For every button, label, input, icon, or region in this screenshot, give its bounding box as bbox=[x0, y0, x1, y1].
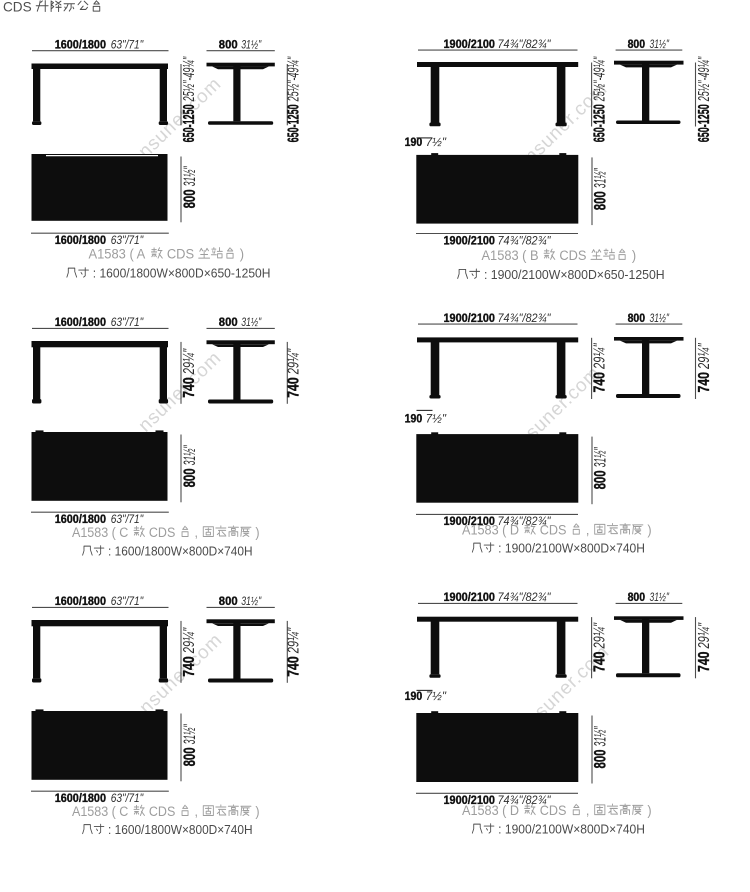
svg-text:1600/1800: 1600/1800 bbox=[55, 317, 106, 329]
svg-text:31½": 31½" bbox=[181, 445, 199, 466]
svg-text:800: 800 bbox=[219, 39, 238, 51]
svg-text:1600/1800: 1600/1800 bbox=[55, 596, 106, 608]
svg-text:740: 740 bbox=[181, 656, 198, 677]
svg-text:31½": 31½" bbox=[592, 726, 610, 747]
svg-text:74¾"/82¾": 74¾"/82¾" bbox=[498, 235, 552, 247]
svg-text:): ) bbox=[236, 246, 244, 262]
svg-text:740: 740 bbox=[696, 372, 713, 393]
svg-text:,: , bbox=[191, 803, 201, 819]
svg-text:740: 740 bbox=[286, 377, 303, 398]
svg-text:800: 800 bbox=[592, 750, 610, 769]
svg-text:1900/2100: 1900/2100 bbox=[444, 235, 496, 247]
svg-text:29¼": 29¼" bbox=[286, 627, 303, 654]
svg-text:25½"-49¼": 25½"-49¼" bbox=[286, 56, 303, 102]
svg-text:74¾"/82¾": 74¾"/82¾" bbox=[498, 39, 552, 51]
svg-text:1900/2100: 1900/2100 bbox=[444, 39, 496, 51]
svg-text:A1583 ( A: A1583 ( A bbox=[89, 246, 149, 262]
svg-text:800: 800 bbox=[181, 468, 199, 487]
svg-text:650-1250: 650-1250 bbox=[181, 104, 198, 142]
svg-text:29¼": 29¼" bbox=[286, 348, 303, 375]
svg-text:A1583 ( C: A1583 ( C bbox=[72, 803, 132, 819]
svg-text:CDS: CDS bbox=[3, 0, 35, 15]
svg-text:650-1250: 650-1250 bbox=[591, 104, 608, 142]
svg-text:29¼": 29¼" bbox=[591, 342, 608, 369]
svg-text:CDS: CDS bbox=[536, 802, 570, 818]
svg-text:,: , bbox=[582, 522, 593, 538]
svg-text:650-1250: 650-1250 bbox=[696, 104, 713, 142]
svg-text:CDS: CDS bbox=[556, 247, 590, 263]
svg-text:29¼": 29¼" bbox=[696, 342, 713, 369]
svg-text:29¼": 29¼" bbox=[181, 627, 198, 654]
svg-text:31½": 31½" bbox=[241, 39, 262, 51]
svg-text:: 1900/2100W×800D×740H: : 1900/2100W×800D×740H bbox=[495, 541, 645, 556]
svg-text:800: 800 bbox=[219, 317, 238, 329]
svg-text:740: 740 bbox=[591, 372, 608, 393]
svg-text:1900/2100: 1900/2100 bbox=[444, 313, 496, 325]
svg-text:31½": 31½" bbox=[592, 447, 610, 468]
svg-text:31½": 31½" bbox=[241, 317, 262, 329]
svg-text:CDS: CDS bbox=[145, 803, 178, 819]
svg-text:190: 190 bbox=[405, 691, 423, 703]
svg-text:74¾"/82¾": 74¾"/82¾" bbox=[498, 313, 552, 325]
svg-text:7½": 7½" bbox=[426, 414, 447, 426]
svg-text:): ) bbox=[252, 803, 260, 819]
svg-text:CDS: CDS bbox=[163, 246, 197, 262]
svg-text:800: 800 bbox=[628, 313, 646, 325]
svg-text:63"/71": 63"/71" bbox=[111, 317, 144, 329]
svg-text:800: 800 bbox=[592, 191, 610, 210]
svg-text:29¼": 29¼" bbox=[696, 622, 713, 649]
svg-text:): ) bbox=[644, 522, 652, 538]
svg-text:190: 190 bbox=[405, 414, 423, 426]
svg-text:650-1250: 650-1250 bbox=[286, 104, 303, 142]
svg-text:A1583 ( D: A1583 ( D bbox=[462, 522, 523, 538]
svg-text:740: 740 bbox=[286, 656, 303, 677]
svg-text:31½": 31½" bbox=[650, 313, 670, 325]
svg-text:: 1600/1800W×800D×740H: : 1600/1800W×800D×740H bbox=[105, 823, 253, 838]
svg-text:: 1900/2100W×800D×650-1250H: : 1900/2100W×800D×650-1250H bbox=[481, 267, 665, 281]
svg-text:63"/71": 63"/71" bbox=[111, 39, 144, 51]
svg-text:25½"-49¼": 25½"-49¼" bbox=[181, 56, 198, 102]
svg-text:31½": 31½" bbox=[181, 166, 199, 187]
svg-text:A1583 ( C: A1583 ( C bbox=[72, 524, 132, 540]
svg-text:7½": 7½" bbox=[426, 137, 447, 149]
svg-text:29¼": 29¼" bbox=[591, 622, 608, 649]
svg-text:740: 740 bbox=[181, 377, 198, 398]
svg-text:800: 800 bbox=[592, 470, 610, 489]
svg-text:190: 190 bbox=[405, 137, 423, 149]
svg-text:800: 800 bbox=[181, 189, 199, 208]
svg-text:CDS: CDS bbox=[536, 522, 570, 538]
svg-text:31½": 31½" bbox=[241, 596, 262, 608]
svg-text:1600/1800: 1600/1800 bbox=[55, 39, 106, 51]
svg-text:740: 740 bbox=[591, 652, 608, 673]
svg-text:): ) bbox=[252, 524, 260, 540]
svg-text:800: 800 bbox=[628, 39, 646, 51]
svg-text:29¼": 29¼" bbox=[181, 348, 198, 375]
svg-text:800: 800 bbox=[219, 596, 238, 608]
svg-text:,: , bbox=[191, 524, 201, 540]
svg-text:): ) bbox=[628, 247, 636, 263]
svg-text:740: 740 bbox=[696, 652, 713, 673]
svg-text:1900/2100: 1900/2100 bbox=[444, 592, 496, 604]
svg-text:: 1900/2100W×800D×740H: : 1900/2100W×800D×740H bbox=[495, 822, 645, 837]
svg-text:7½": 7½" bbox=[426, 691, 447, 703]
svg-text:): ) bbox=[644, 802, 652, 818]
svg-text:74¾"/82¾": 74¾"/82¾" bbox=[498, 592, 552, 604]
svg-text:,: , bbox=[582, 802, 593, 818]
svg-text:31½": 31½" bbox=[650, 592, 670, 604]
svg-text:25½"-49¼": 25½"-49¼" bbox=[696, 56, 713, 102]
svg-text:A1583 ( B: A1583 ( B bbox=[482, 247, 543, 263]
svg-text:31½": 31½" bbox=[592, 168, 610, 189]
svg-text:800: 800 bbox=[181, 747, 199, 766]
svg-text:25½"-49¼": 25½"-49¼" bbox=[591, 56, 608, 102]
svg-text:31½": 31½" bbox=[650, 39, 670, 51]
svg-text:800: 800 bbox=[628, 592, 646, 604]
svg-text:CDS: CDS bbox=[145, 524, 178, 540]
svg-text:: 1600/1800W×800D×740H: : 1600/1800W×800D×740H bbox=[105, 544, 253, 559]
svg-text:A1583 ( D: A1583 ( D bbox=[462, 802, 523, 818]
svg-text:31½": 31½" bbox=[181, 724, 199, 745]
svg-text:63"/71": 63"/71" bbox=[111, 596, 144, 608]
svg-text:: 1600/1800W×800D×650-1250H: : 1600/1800W×800D×650-1250H bbox=[89, 266, 270, 281]
